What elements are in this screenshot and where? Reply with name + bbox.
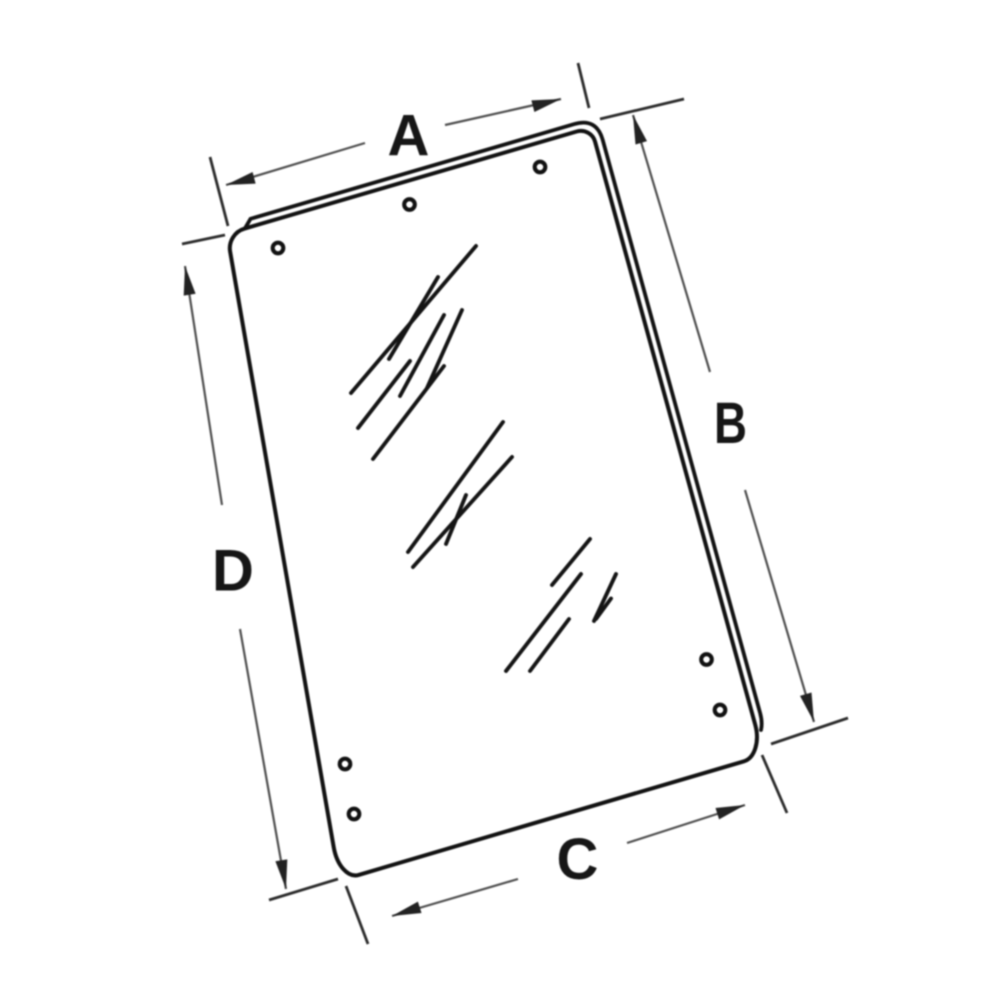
- svg-text:C: C: [557, 827, 599, 892]
- svg-text:D: D: [212, 539, 254, 604]
- svg-text:B: B: [714, 391, 747, 456]
- svg-text:A: A: [388, 104, 430, 169]
